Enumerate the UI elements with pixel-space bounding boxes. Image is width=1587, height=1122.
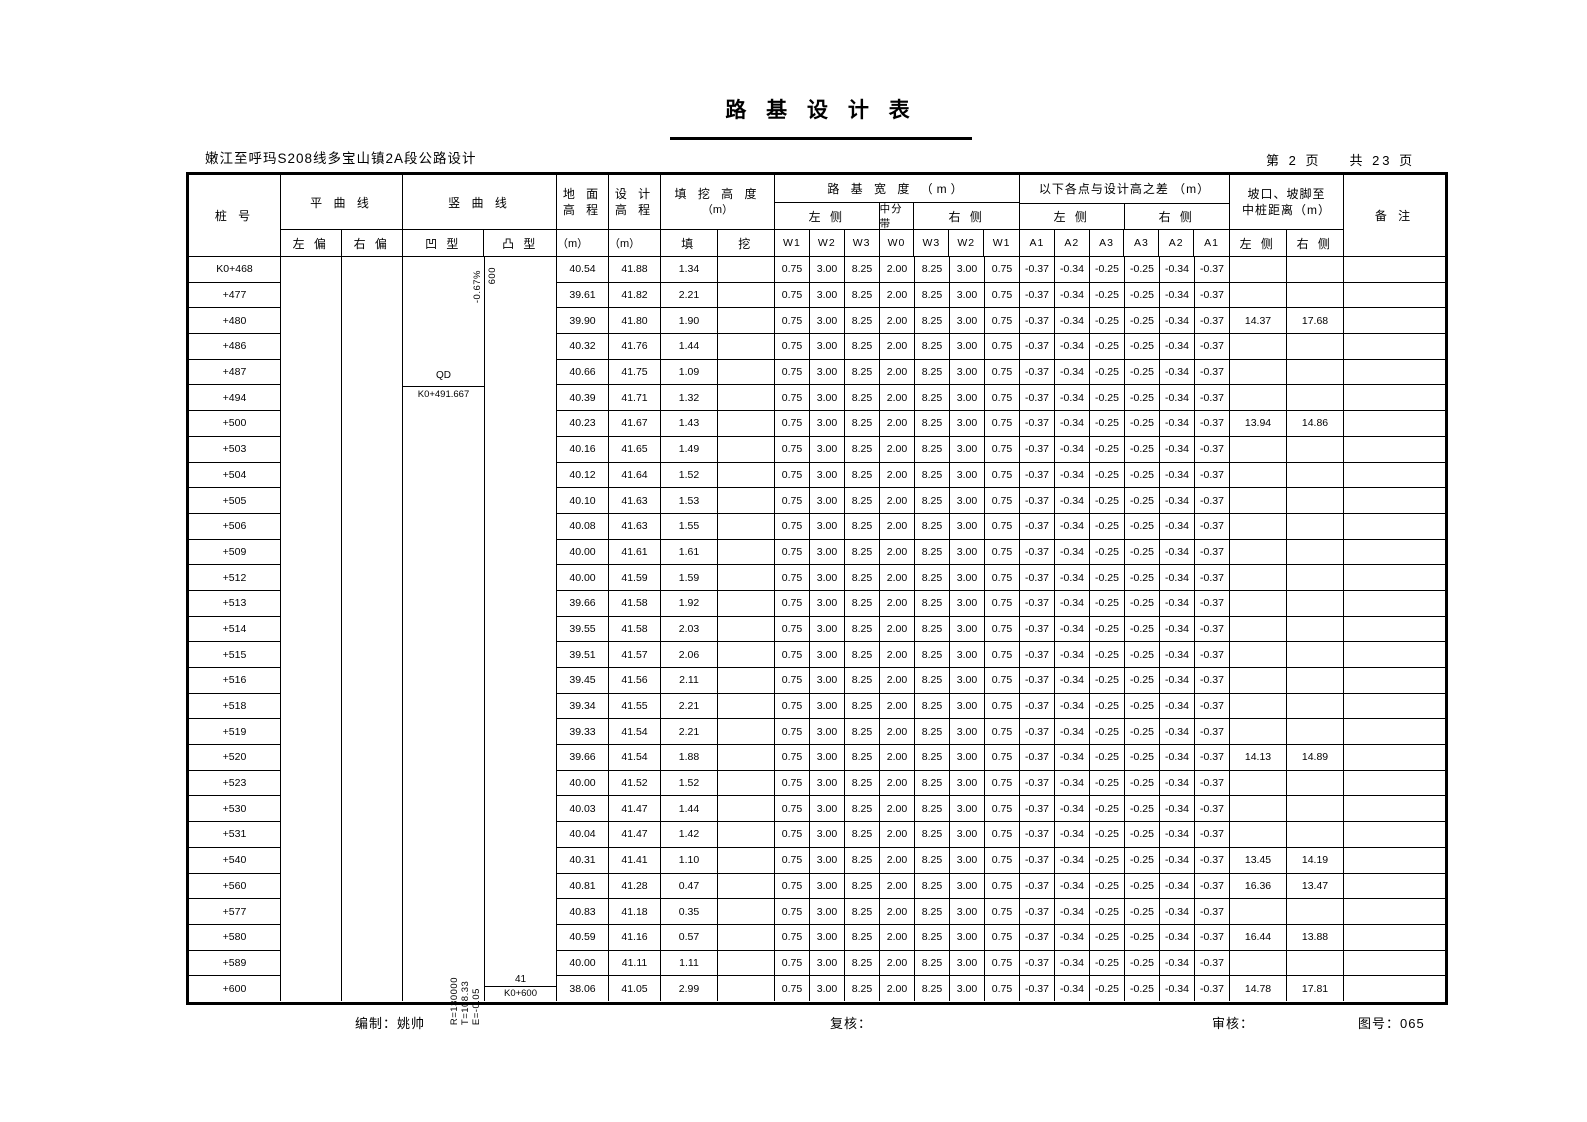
elevation-diff-cell: -0.25 bbox=[1125, 617, 1159, 643]
elevation-diff-cell: -0.34 bbox=[1055, 796, 1089, 822]
remark-cell bbox=[1344, 437, 1445, 463]
roadbed-width-cell: 8.25 bbox=[845, 796, 879, 822]
elevation-diff-cell: -0.37 bbox=[1020, 334, 1054, 360]
roadbed-width-cell: 2.00 bbox=[880, 899, 914, 925]
fill-height-cell: 1.10 bbox=[661, 848, 717, 874]
station-cell: +509 bbox=[189, 540, 280, 566]
elevation-diff-cell: -0.25 bbox=[1125, 925, 1159, 951]
roadbed-width-cell: 0.75 bbox=[775, 360, 809, 386]
elevation-diff-cell: -0.34 bbox=[1160, 514, 1194, 540]
fill-height-cell: 1.53 bbox=[661, 488, 717, 514]
remark-cell bbox=[1344, 796, 1445, 822]
design-elevation-cell: 41.41 bbox=[609, 848, 660, 874]
roadbed-width-cell: 3.00 bbox=[950, 874, 984, 900]
elevation-diff-cell: -0.37 bbox=[1195, 334, 1229, 360]
roadbed-width-cell: 3.00 bbox=[950, 334, 984, 360]
roadbed-width-cell: 2.00 bbox=[880, 540, 914, 566]
elevation-diff-cell: -0.25 bbox=[1090, 308, 1124, 334]
slope-dist-left-cell bbox=[1230, 540, 1286, 566]
ground-elevation-cell: 40.03 bbox=[557, 796, 608, 822]
elevation-diff-cell: -0.34 bbox=[1160, 694, 1194, 720]
roadbed-width-cell: 8.25 bbox=[915, 308, 949, 334]
slope-dist-left-cell bbox=[1230, 899, 1286, 925]
roadbed-width-cell: 0.75 bbox=[775, 411, 809, 437]
slope-dist-right-cell bbox=[1287, 283, 1343, 309]
fill-height-cell: 1.42 bbox=[661, 822, 717, 848]
fill-height-cell: 2.21 bbox=[661, 719, 717, 745]
remark-cell bbox=[1344, 360, 1445, 386]
elevation-diff-cell: -0.34 bbox=[1160, 437, 1194, 463]
roadbed-width-cell: 8.25 bbox=[915, 257, 949, 283]
roadbed-width-cell: 3.00 bbox=[810, 617, 844, 643]
design-elevation-cell: 41.52 bbox=[609, 771, 660, 797]
elevation-diff-cell: -0.34 bbox=[1055, 514, 1089, 540]
ground-elevation-cell: 40.00 bbox=[557, 771, 608, 797]
roadbed-width-cell: 3.00 bbox=[810, 308, 844, 334]
slope-dist-left-cell bbox=[1230, 334, 1286, 360]
roadbed-width-cell: 0.75 bbox=[985, 899, 1019, 925]
elevation-diff-cell: -0.37 bbox=[1195, 385, 1229, 411]
roadbed-width-cell: 2.00 bbox=[880, 565, 914, 591]
roadbed-width-cell: 0.75 bbox=[775, 334, 809, 360]
roadbed-width-cell: 2.00 bbox=[880, 796, 914, 822]
roadbed-width-cell: 0.75 bbox=[985, 745, 1019, 771]
cut-height-cell bbox=[718, 308, 774, 334]
design-elevation-cell: 41.82 bbox=[609, 283, 660, 309]
elevation-diff-cell: -0.25 bbox=[1125, 745, 1159, 771]
elevation-diff-cell: -0.37 bbox=[1195, 463, 1229, 489]
roadbed-width-cell: 3.00 bbox=[950, 514, 984, 540]
slope-dist-left-cell: 16.36 bbox=[1230, 874, 1286, 900]
roadbed-width-cell: 3.00 bbox=[810, 925, 844, 951]
ground-elevation-cell: 40.83 bbox=[557, 899, 608, 925]
vcurve-start-mark: QD bbox=[403, 365, 484, 387]
station-cell: +486 bbox=[189, 334, 280, 360]
station-cell: +520 bbox=[189, 745, 280, 771]
roadbed-width-cell: 0.75 bbox=[985, 976, 1019, 1001]
roadbed-width-cell: 3.00 bbox=[810, 771, 844, 797]
roadbed-width-cell: 8.25 bbox=[845, 283, 879, 309]
cut-height-cell bbox=[718, 642, 774, 668]
elevation-diff-cell: -0.25 bbox=[1090, 257, 1124, 283]
elevation-diff-cell: -0.37 bbox=[1195, 925, 1229, 951]
elevation-diff-cell: -0.37 bbox=[1195, 771, 1229, 797]
slope-dist-right-cell bbox=[1287, 565, 1343, 591]
roadbed-width-cell: 3.00 bbox=[810, 668, 844, 694]
roadbed-width-cell: 3.00 bbox=[810, 257, 844, 283]
col-cut: 挖 bbox=[718, 230, 775, 256]
design-elevation-cell: 41.47 bbox=[609, 822, 660, 848]
roadbed-width-cell: 2.00 bbox=[880, 951, 914, 977]
roadbed-width-cell: 3.00 bbox=[950, 385, 984, 411]
roadbed-width-cell: 0.75 bbox=[775, 745, 809, 771]
roadbed-width-cell: 8.25 bbox=[845, 719, 879, 745]
remark-cell bbox=[1344, 951, 1445, 977]
elevation-diff-cell: -0.25 bbox=[1125, 514, 1159, 540]
fill-height-cell: 2.11 bbox=[661, 668, 717, 694]
roadbed-width-cell: 0.75 bbox=[775, 642, 809, 668]
elevation-diff-cell: -0.34 bbox=[1160, 334, 1194, 360]
roadbed-width-cell: 8.25 bbox=[845, 668, 879, 694]
page-current: 第 2 页 bbox=[1266, 150, 1321, 169]
elevation-diff-cell: -0.37 bbox=[1195, 745, 1229, 771]
remark-cell bbox=[1344, 257, 1445, 283]
roadbed-width-cell: 0.75 bbox=[985, 334, 1019, 360]
roadbed-width-cell: 0.75 bbox=[985, 411, 1019, 437]
width-column-3: 2.002.002.002.002.002.002.002.002.002.00… bbox=[880, 257, 915, 1001]
elevation-diff-cell: -0.37 bbox=[1020, 796, 1054, 822]
slope-dist-left-cell: 14.78 bbox=[1230, 976, 1286, 1001]
elevation-diff-cell: -0.37 bbox=[1195, 591, 1229, 617]
slope-dist-right-cell: 17.81 bbox=[1287, 976, 1343, 1001]
vcurve-parameters: R=130000 T=108.33 E=-0.05 bbox=[449, 977, 482, 1025]
roadbed-width-cell: 3.00 bbox=[950, 283, 984, 309]
elevation-diff-cell: -0.37 bbox=[1195, 565, 1229, 591]
diff-left-side: 左 侧 bbox=[1020, 204, 1125, 230]
slope-dist-left-cell bbox=[1230, 514, 1286, 540]
col-w3-left: W3 bbox=[845, 230, 880, 256]
fill-height-cell: 1.44 bbox=[661, 796, 717, 822]
roadbed-width-cell: 3.00 bbox=[950, 308, 984, 334]
hcurve-right-band bbox=[342, 257, 403, 1001]
elevation-diff-cell: -0.34 bbox=[1055, 488, 1089, 514]
slope-dist-left-cell bbox=[1230, 668, 1286, 694]
cut-height-cell bbox=[718, 719, 774, 745]
elevation-diff-cell: -0.25 bbox=[1090, 848, 1124, 874]
slope-dist-left-cell bbox=[1230, 463, 1286, 489]
fill-height-cell: 1.11 bbox=[661, 951, 717, 977]
width-column-1: 3.003.003.003.003.003.003.003.003.003.00… bbox=[810, 257, 845, 1001]
roadbed-width-cell: 2.00 bbox=[880, 822, 914, 848]
station-cell: +515 bbox=[189, 642, 280, 668]
elevation-diff-cell: -0.37 bbox=[1020, 822, 1054, 848]
roadbed-width-cell: 8.25 bbox=[845, 540, 879, 566]
elevation-diff-cell: -0.34 bbox=[1160, 925, 1194, 951]
roadbed-width-cell: 0.75 bbox=[775, 617, 809, 643]
roadbed-width-cell: 3.00 bbox=[810, 283, 844, 309]
ground-elevation-cell: 40.12 bbox=[557, 463, 608, 489]
slope-dist-right-cell bbox=[1287, 257, 1343, 283]
fill-height-cell: 1.34 bbox=[661, 257, 717, 283]
slope-dist-right-cell bbox=[1287, 822, 1343, 848]
roadbed-width-cell: 2.00 bbox=[880, 848, 914, 874]
roadbed-width-cell: 2.00 bbox=[880, 488, 914, 514]
roadbed-width-cell: 8.25 bbox=[915, 874, 949, 900]
fill-height-cell: 1.44 bbox=[661, 334, 717, 360]
elevation-diff-cell: -0.37 bbox=[1020, 283, 1054, 309]
ground-elevation-cell: 39.45 bbox=[557, 668, 608, 694]
fill-column: 1.342.211.901.441.091.321.431.491.521.53… bbox=[661, 257, 718, 1001]
ground-elevation-cell: 40.10 bbox=[557, 488, 608, 514]
table-body: K0+468+477+480+486+487+494+500+503+504+5… bbox=[189, 257, 1445, 1001]
elevation-diff-cell: -0.25 bbox=[1090, 334, 1124, 360]
col-w2-left: W2 bbox=[810, 230, 845, 256]
dist-right-column: 17.6814.8614.8914.1913.4713.8817.81 bbox=[1287, 257, 1344, 1001]
roadbed-width-cell: 8.25 bbox=[915, 514, 949, 540]
elevation-diff-cell: -0.25 bbox=[1125, 668, 1159, 694]
elevation-diff-cell: -0.25 bbox=[1125, 899, 1159, 925]
width-column-2: 8.258.258.258.258.258.258.258.258.258.25… bbox=[845, 257, 880, 1001]
page-title: 路 基 设 计 表 bbox=[670, 94, 972, 140]
elevation-diff-cell: -0.34 bbox=[1160, 642, 1194, 668]
roadbed-width-cell: 8.25 bbox=[845, 488, 879, 514]
elevation-diff-cell: -0.34 bbox=[1160, 976, 1194, 1001]
cut-height-cell bbox=[718, 360, 774, 386]
roadbed-width-cell: 2.00 bbox=[880, 283, 914, 309]
elevation-diff-cell: -0.34 bbox=[1160, 951, 1194, 977]
elevation-diff-cell: -0.37 bbox=[1020, 360, 1054, 386]
roadbed-width-cell: 8.25 bbox=[915, 951, 949, 977]
station-cell: +512 bbox=[189, 565, 280, 591]
elevation-diff-cell: -0.37 bbox=[1195, 514, 1229, 540]
roadbed-width-cell: 3.00 bbox=[950, 796, 984, 822]
roadbed-width-cell: 8.25 bbox=[915, 899, 949, 925]
width-right-side: 右 侧 bbox=[914, 203, 1019, 229]
slope-dist-left-cell: 14.13 bbox=[1230, 745, 1286, 771]
roadbed-width-cell: 3.00 bbox=[810, 360, 844, 386]
diff-column-2: -0.25-0.25-0.25-0.25-0.25-0.25-0.25-0.25… bbox=[1090, 257, 1125, 1001]
elevation-diff-cell: -0.34 bbox=[1160, 540, 1194, 566]
roadbed-width-cell: 0.75 bbox=[775, 848, 809, 874]
col-a2-right: A2 bbox=[1159, 230, 1194, 256]
col-design-elevation: 设 计 高 程 bbox=[609, 175, 660, 230]
ground-elevation-cell: 40.23 bbox=[557, 411, 608, 437]
roadbed-width-cell: 8.25 bbox=[845, 617, 879, 643]
cut-height-cell bbox=[718, 565, 774, 591]
page-total: 共 23 页 bbox=[1349, 150, 1415, 169]
fill-height-cell: 2.06 bbox=[661, 642, 717, 668]
roadbed-width-cell: 0.75 bbox=[775, 540, 809, 566]
station-cell: +477 bbox=[189, 283, 280, 309]
elevation-diff-cell: -0.37 bbox=[1195, 848, 1229, 874]
slope-dist-right-cell: 13.47 bbox=[1287, 874, 1343, 900]
roadbed-width-cell: 0.75 bbox=[775, 514, 809, 540]
design-elevation-cell: 41.59 bbox=[609, 565, 660, 591]
roadbed-width-cell: 0.75 bbox=[775, 591, 809, 617]
elevation-diff-cell: -0.25 bbox=[1125, 719, 1159, 745]
cut-height-cell bbox=[718, 283, 774, 309]
elevation-diff-cell: -0.37 bbox=[1020, 668, 1054, 694]
fill-height-cell: 0.47 bbox=[661, 874, 717, 900]
roadbed-width-cell: 0.75 bbox=[985, 591, 1019, 617]
remark-cell bbox=[1344, 976, 1445, 1001]
footer-drawing-number: 图号：065 bbox=[1358, 1013, 1425, 1032]
slope-dist-left-cell bbox=[1230, 694, 1286, 720]
roadbed-width-cell: 8.25 bbox=[915, 463, 949, 489]
remark-cell bbox=[1344, 334, 1445, 360]
elevation-diff-cell: -0.37 bbox=[1020, 899, 1054, 925]
elevation-diff-cell: -0.37 bbox=[1020, 591, 1054, 617]
roadbed-width-cell: 8.25 bbox=[915, 283, 949, 309]
elevation-diff-cell: -0.37 bbox=[1195, 257, 1229, 283]
design-elevation-cell: 41.88 bbox=[609, 257, 660, 283]
elevation-diff-cell: -0.25 bbox=[1125, 951, 1159, 977]
page-indicator: 第 2 页 共 23 页 bbox=[1266, 150, 1415, 169]
slope-dist-right-cell bbox=[1287, 771, 1343, 797]
elevation-diff-cell: -0.37 bbox=[1195, 899, 1229, 925]
elevation-diff-cell: -0.37 bbox=[1195, 796, 1229, 822]
elevation-diff-cell: -0.25 bbox=[1090, 385, 1124, 411]
ground-elevation-cell: 40.32 bbox=[557, 334, 608, 360]
roadbed-width-cell: 3.00 bbox=[810, 437, 844, 463]
slope-dist-right-cell: 17.68 bbox=[1287, 308, 1343, 334]
ground-elevation-cell: 39.66 bbox=[557, 591, 608, 617]
elevation-diff-cell: -0.37 bbox=[1020, 514, 1054, 540]
roadbed-width-cell: 8.25 bbox=[915, 437, 949, 463]
elevation-diff-cell: -0.37 bbox=[1020, 976, 1054, 1001]
roadbed-width-cell: 8.25 bbox=[915, 411, 949, 437]
elevation-diff-cell: -0.37 bbox=[1020, 925, 1054, 951]
width-column-5: 3.003.003.003.003.003.003.003.003.003.00… bbox=[950, 257, 985, 1001]
elevation-diff-cell: -0.37 bbox=[1020, 437, 1054, 463]
slope-dist-left-cell bbox=[1230, 591, 1286, 617]
fill-height-cell: 1.55 bbox=[661, 514, 717, 540]
cut-height-cell bbox=[718, 874, 774, 900]
design-elevation-cell: 41.71 bbox=[609, 385, 660, 411]
elevation-diff-cell: -0.34 bbox=[1055, 642, 1089, 668]
hcurve-left-band bbox=[281, 257, 342, 1001]
cut-height-cell bbox=[718, 951, 774, 977]
remark-cell bbox=[1344, 540, 1445, 566]
fill-height-cell: 2.03 bbox=[661, 617, 717, 643]
station-cell: +494 bbox=[189, 385, 280, 411]
station-cell: +504 bbox=[189, 463, 280, 489]
slope-dist-right-cell: 14.89 bbox=[1287, 745, 1343, 771]
roadbed-width-cell: 0.75 bbox=[985, 360, 1019, 386]
cut-height-cell bbox=[718, 411, 774, 437]
slope-dist-right-cell bbox=[1287, 540, 1343, 566]
group-roadbed-width: 路 基 宽 度 （m） bbox=[775, 175, 1019, 203]
slope-dist-left-cell: 16.44 bbox=[1230, 925, 1286, 951]
roadbed-width-cell: 0.75 bbox=[775, 488, 809, 514]
cut-height-cell bbox=[718, 463, 774, 489]
vcurve-start-station: K0+491.667 bbox=[403, 387, 484, 402]
fill-height-cell: 1.52 bbox=[661, 463, 717, 489]
roadbed-design-table: 桩 号 平 曲 线 左 偏 右 偏 竖 曲 线 凹 型 凸 型 地 面 高 程 … bbox=[186, 172, 1448, 1005]
fill-height-cell: 1.92 bbox=[661, 591, 717, 617]
ground-elevation-cell: 38.06 bbox=[557, 976, 608, 1001]
roadbed-width-cell: 8.25 bbox=[845, 334, 879, 360]
station-cell: +487 bbox=[189, 360, 280, 386]
elevation-diff-cell: -0.25 bbox=[1090, 591, 1124, 617]
col-w1-left: W1 bbox=[775, 230, 810, 256]
cut-height-cell bbox=[718, 437, 774, 463]
station-cell: +530 bbox=[189, 796, 280, 822]
elevation-diff-cell: -0.25 bbox=[1125, 411, 1159, 437]
roadbed-width-cell: 3.00 bbox=[810, 745, 844, 771]
elevation-diff-cell: -0.37 bbox=[1195, 874, 1229, 900]
diff-column-5: -0.37-0.37-0.37-0.37-0.37-0.37-0.37-0.37… bbox=[1195, 257, 1230, 1001]
vcurve-convex-band: 600 41 K0+600 bbox=[485, 257, 557, 1001]
roadbed-width-cell: 0.75 bbox=[985, 642, 1019, 668]
remark-cell bbox=[1344, 642, 1445, 668]
roadbed-width-cell: 0.75 bbox=[775, 257, 809, 283]
roadbed-width-cell: 0.75 bbox=[775, 771, 809, 797]
cut-height-cell bbox=[718, 488, 774, 514]
roadbed-width-cell: 8.25 bbox=[845, 463, 879, 489]
roadbed-width-cell: 3.00 bbox=[810, 642, 844, 668]
col-remark: 备 注 bbox=[1344, 175, 1445, 256]
elevation-diff-cell: -0.34 bbox=[1160, 463, 1194, 489]
roadbed-width-cell: 8.25 bbox=[845, 745, 879, 771]
design-elevation-cell: 41.63 bbox=[609, 514, 660, 540]
elevation-diff-cell: -0.34 bbox=[1160, 617, 1194, 643]
col-a3-left: A3 bbox=[1090, 230, 1125, 256]
col-fill: 填 bbox=[661, 230, 718, 256]
ground-unit: （m） bbox=[557, 230, 588, 256]
roadbed-width-cell: 0.75 bbox=[985, 283, 1019, 309]
elevation-diff-cell: -0.34 bbox=[1160, 668, 1194, 694]
roadbed-width-cell: 0.75 bbox=[775, 668, 809, 694]
roadbed-width-cell: 3.00 bbox=[950, 668, 984, 694]
diff-column-0: -0.37-0.37-0.37-0.37-0.37-0.37-0.37-0.37… bbox=[1020, 257, 1055, 1001]
roadbed-width-cell: 0.75 bbox=[775, 308, 809, 334]
elevation-diff-cell: -0.25 bbox=[1090, 488, 1124, 514]
col-station: 桩 号 bbox=[189, 175, 280, 256]
vcurve-start-marker: QD K0+491.667 bbox=[403, 365, 484, 402]
vcurve-end-elevation: 41 bbox=[485, 973, 556, 987]
slope-dist-right-cell bbox=[1287, 668, 1343, 694]
cut-height-cell bbox=[718, 591, 774, 617]
roadbed-width-cell: 0.75 bbox=[775, 385, 809, 411]
roadbed-width-cell: 3.00 bbox=[950, 694, 984, 720]
elevation-diff-cell: -0.37 bbox=[1195, 360, 1229, 386]
elevation-diff-cell: -0.25 bbox=[1090, 951, 1124, 977]
roadbed-width-cell: 0.75 bbox=[775, 976, 809, 1001]
roadbed-width-cell: 8.25 bbox=[915, 617, 949, 643]
ground-elevation-cell: 39.34 bbox=[557, 694, 608, 720]
elevation-diff-cell: -0.25 bbox=[1125, 642, 1159, 668]
roadbed-width-cell: 3.00 bbox=[810, 514, 844, 540]
elevation-diff-cell: -0.34 bbox=[1055, 925, 1089, 951]
col-vcurve-concave: 凹 型 bbox=[403, 230, 484, 256]
elevation-diff-cell: -0.25 bbox=[1125, 874, 1159, 900]
elevation-diff-cell: -0.34 bbox=[1055, 411, 1089, 437]
ground-elevation-cell: 40.16 bbox=[557, 437, 608, 463]
roadbed-width-cell: 8.25 bbox=[845, 591, 879, 617]
elevation-diff-cell: -0.25 bbox=[1125, 257, 1159, 283]
roadbed-width-cell: 3.00 bbox=[950, 591, 984, 617]
roadbed-width-cell: 8.25 bbox=[915, 694, 949, 720]
elevation-diff-cell: -0.34 bbox=[1055, 951, 1089, 977]
elevation-diff-cell: -0.25 bbox=[1125, 796, 1159, 822]
elevation-diff-cell: -0.37 bbox=[1020, 488, 1054, 514]
slope-dist-left-cell bbox=[1230, 565, 1286, 591]
station-cell: +540 bbox=[189, 848, 280, 874]
elevation-diff-cell: -0.25 bbox=[1090, 540, 1124, 566]
roadbed-width-cell: 2.00 bbox=[880, 437, 914, 463]
roadbed-width-cell: 2.00 bbox=[880, 334, 914, 360]
roadbed-width-cell: 3.00 bbox=[810, 899, 844, 925]
roadbed-width-cell: 3.00 bbox=[810, 565, 844, 591]
station-cell: +519 bbox=[189, 719, 280, 745]
fill-height-cell: 2.21 bbox=[661, 694, 717, 720]
roadbed-width-cell: 8.25 bbox=[915, 488, 949, 514]
slope-dist-left-cell bbox=[1230, 488, 1286, 514]
fill-height-cell: 0.57 bbox=[661, 925, 717, 951]
width-column-6: 0.750.750.750.750.750.750.750.750.750.75… bbox=[985, 257, 1020, 1001]
station-cell: +500 bbox=[189, 411, 280, 437]
elevation-diff-cell: -0.37 bbox=[1195, 642, 1229, 668]
ground-elevation-cell: 40.81 bbox=[557, 874, 608, 900]
slope-dist-left-cell bbox=[1230, 719, 1286, 745]
col-a3-right: A3 bbox=[1124, 230, 1159, 256]
roadbed-width-cell: 8.25 bbox=[845, 874, 879, 900]
elevation-diff-cell: -0.34 bbox=[1055, 617, 1089, 643]
elevation-diff-cell: -0.37 bbox=[1020, 540, 1054, 566]
design-elevation-cell: 41.65 bbox=[609, 437, 660, 463]
vcurve-external: E=-0.05 bbox=[471, 977, 482, 1025]
